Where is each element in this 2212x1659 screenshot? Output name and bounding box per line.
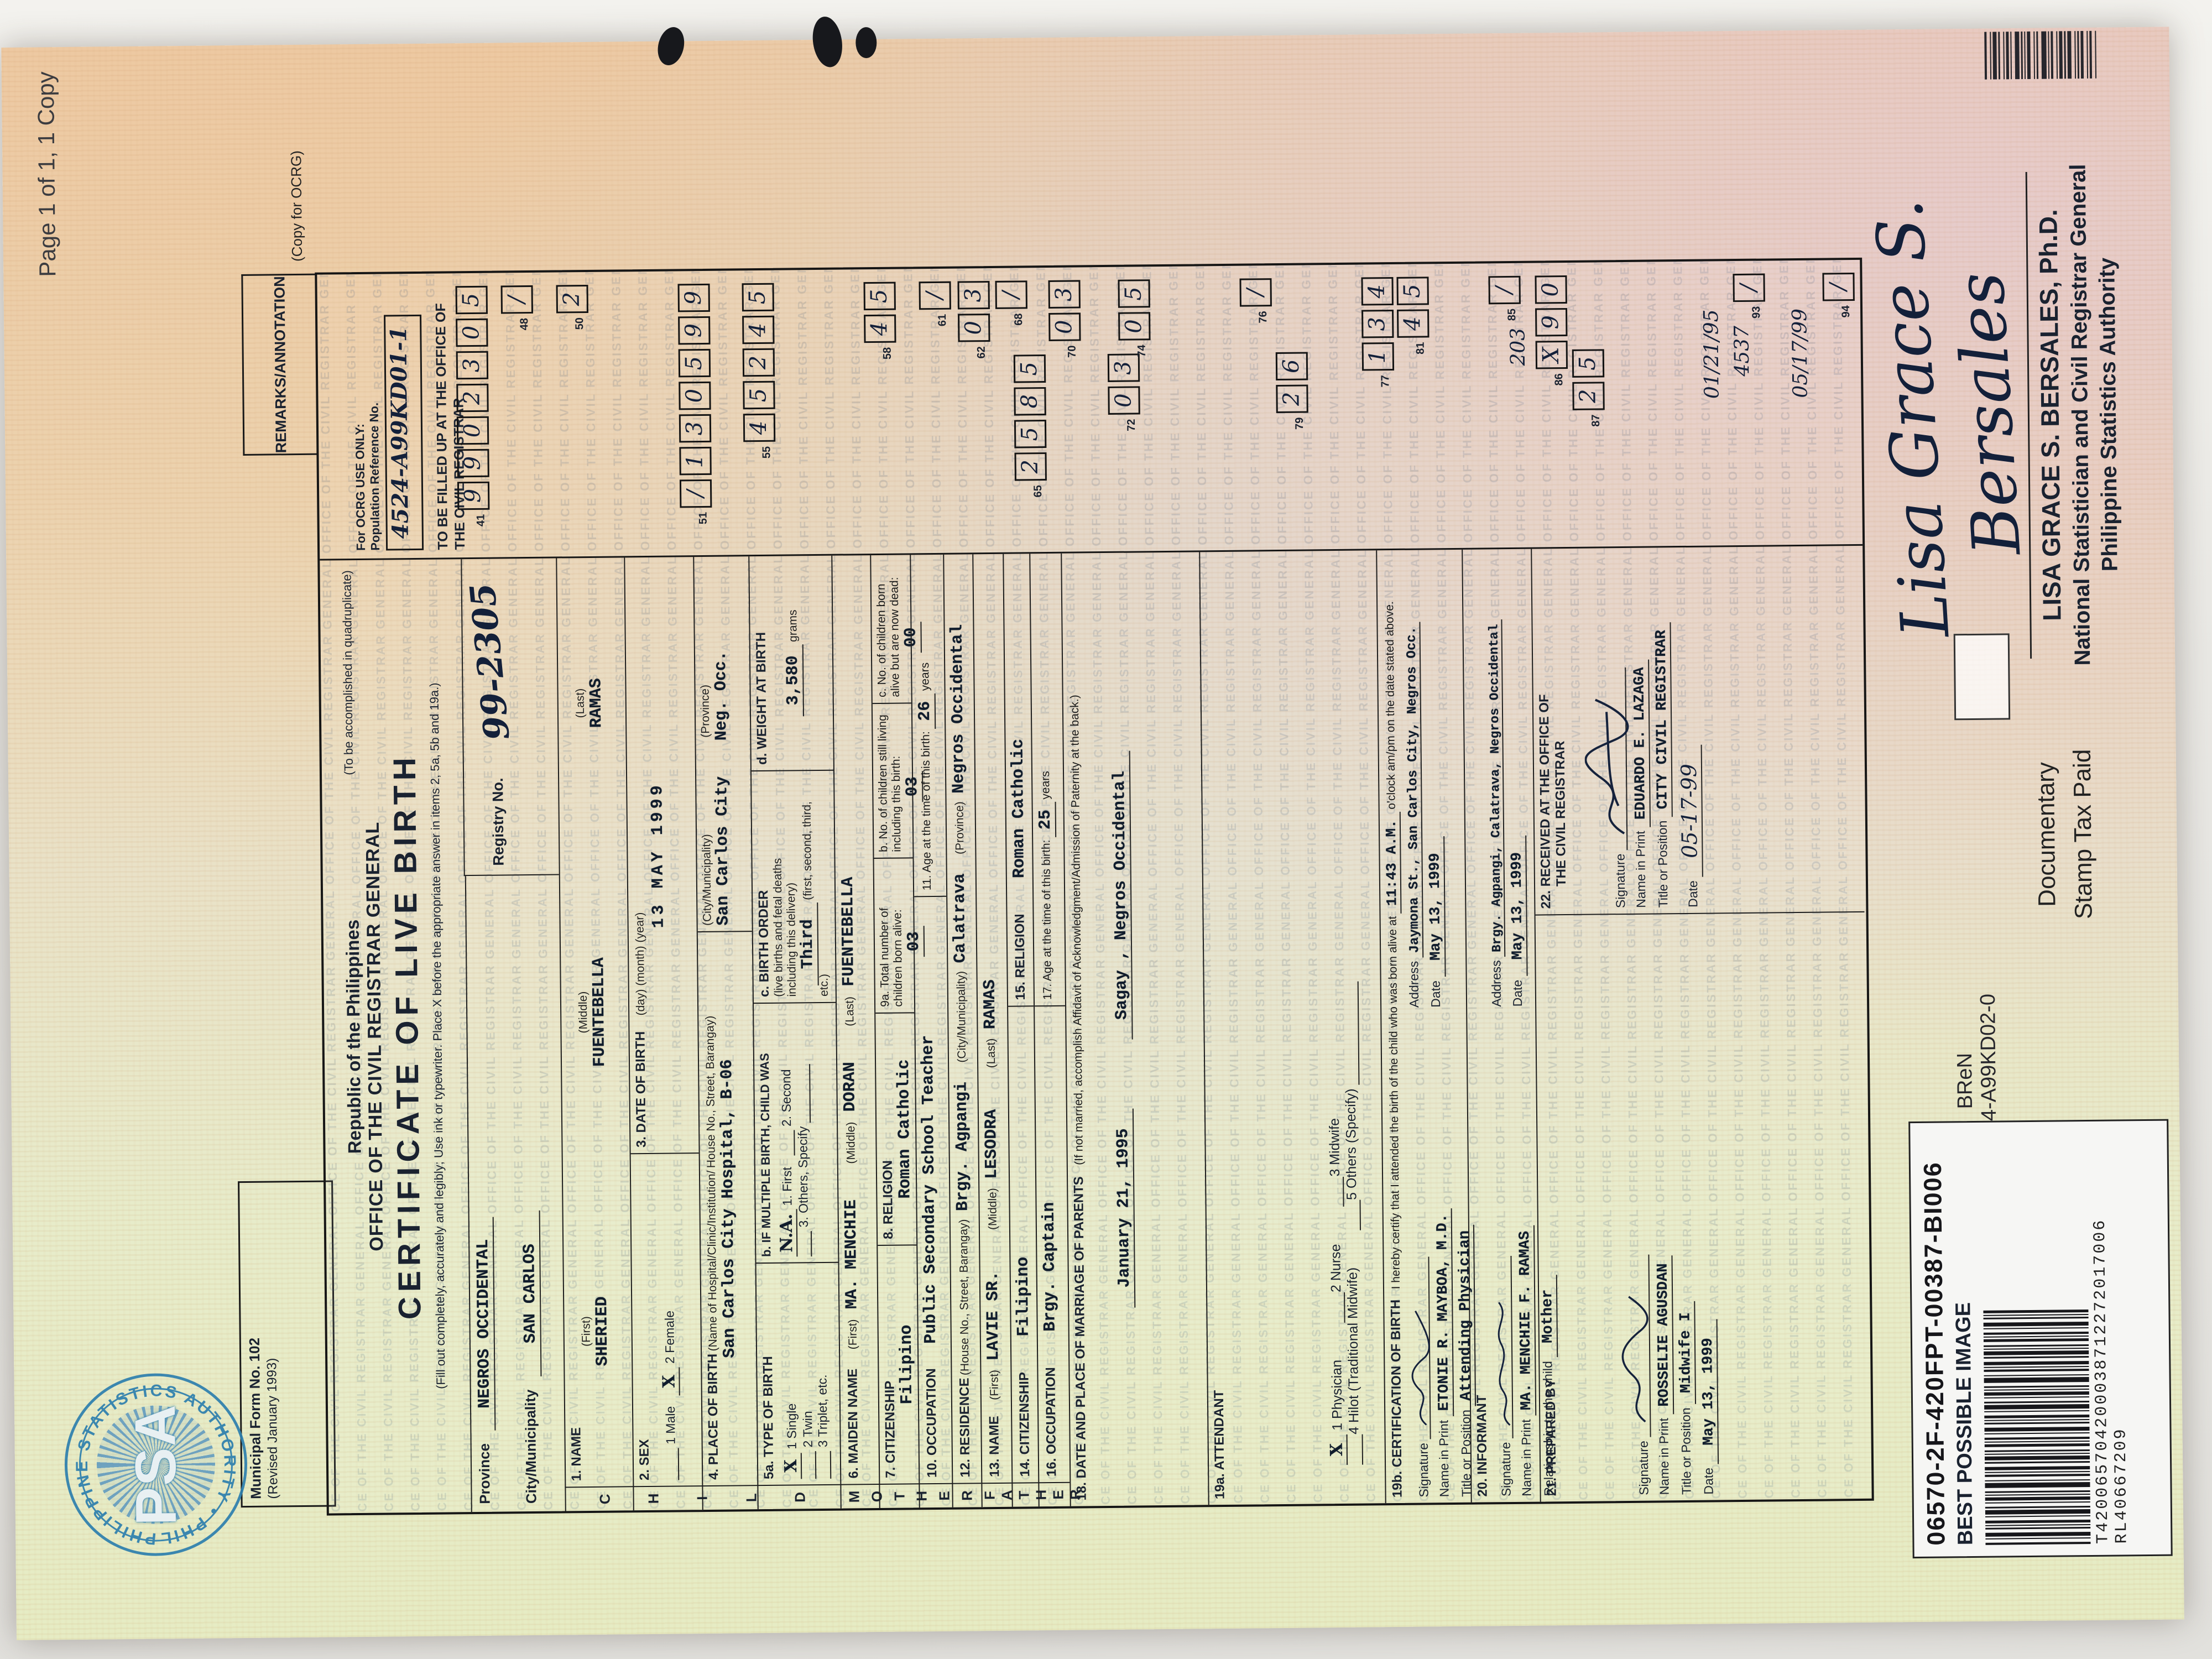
age11-years: years bbox=[919, 662, 931, 691]
pob-prov-sublabel: (Province) bbox=[698, 685, 712, 738]
ocrg-box-group-81: 8145 bbox=[1396, 276, 1429, 354]
ocrg-note: 05/17/99 bbox=[1788, 309, 1812, 398]
pob-city-value: San Carlos City bbox=[713, 776, 733, 925]
name13-label: 13. NAME bbox=[987, 1416, 1002, 1477]
weight-cell: d. WEIGHT AT BIRTH 3,580 grams bbox=[749, 556, 833, 771]
mb-option-others: 3. Others, Specify bbox=[795, 1126, 811, 1228]
age17-label: 17. Age at the time of this birth: bbox=[1040, 839, 1054, 1000]
child-last-name: RAMAS bbox=[587, 678, 606, 728]
cert-addr-label: Address bbox=[1406, 961, 1421, 1008]
copy-for-ocrg: (Copy for OCRG) bbox=[288, 150, 306, 262]
mother-first-name: MA. MENCHIE bbox=[842, 1199, 862, 1309]
sex-cell: 2. SEX 1 Male X 2 Female bbox=[631, 1154, 702, 1486]
mother-age-cell: 11. Age at the time of this birth: 26 ye… bbox=[911, 555, 946, 898]
last-sublabel: (Last) bbox=[573, 679, 587, 728]
pob-city-prov-cell: (City/Municipality) (Province) San Carlo… bbox=[694, 556, 752, 932]
occ16-label: 16. OCCUPATION bbox=[1043, 1367, 1059, 1477]
mother-middle-name: DORAN bbox=[841, 1062, 860, 1112]
mother-residence-city: Calatrava bbox=[951, 873, 971, 963]
ocrg-box-group-87: 8725 bbox=[1572, 349, 1605, 427]
sex-option-female: 2 Female bbox=[662, 1311, 677, 1364]
edge-barcode bbox=[1984, 30, 2151, 80]
ocrg-box-group-94: 94/ bbox=[1822, 273, 1855, 318]
mother-citizenship-cell: 7. CITIZENSHIP Filipino bbox=[878, 1245, 919, 1484]
father-religion-cell: 15. RELIGION Roman Catholic bbox=[1004, 554, 1034, 1006]
ocrg-box-group-93: 93/ bbox=[1733, 274, 1765, 319]
birth-order-cell: c. BIRTH ORDER (live births and fetal de… bbox=[752, 771, 836, 1004]
informant-address: Brgy. Agpangi, Calatrava, Negros Occiden… bbox=[1486, 619, 1505, 957]
prep-nip-label: Name in Print bbox=[1656, 1418, 1671, 1495]
m-last-sub: (Last) bbox=[843, 997, 857, 1026]
image-reference-box: 06570-2F-420FPT-00387-BI006 BEST POSSIBL… bbox=[1908, 1119, 2173, 1558]
mb-label: b. IF MULTIPLE BIRTH, CHILD WAS bbox=[758, 1053, 774, 1257]
ocrg-box-group-68: 68/ bbox=[995, 280, 1027, 326]
occ10-label: 10. OCCUPATION bbox=[924, 1368, 940, 1478]
row-child-name: 1. NAME (First) SHERIED (Middle) FUENTEB… bbox=[556, 557, 633, 1511]
municipal-form-revision: (Revised January 1993) bbox=[262, 1189, 281, 1499]
cert-name: ETONIE R. MAYBOA, M.D. bbox=[1434, 1208, 1454, 1417]
pob-cell: 4. PLACE OF BIRTH (Name of Hospital/Clin… bbox=[698, 932, 758, 1485]
child-first-name: SHERIED bbox=[593, 1296, 612, 1366]
name-label: 1. NAME bbox=[568, 1427, 584, 1481]
children-living-cell: b. No. of children still living includin… bbox=[873, 703, 913, 859]
population-ref-value: 4524-A99KD01-1 bbox=[384, 315, 424, 551]
cit7-label: 7. CITIZENSHIP bbox=[883, 1381, 899, 1478]
dob-label: 3. DATE OF BIRTH bbox=[633, 1031, 649, 1147]
mother-occupation-cell: 10. OCCUPATION Public Secondary School T… bbox=[914, 897, 952, 1484]
mother-residence-province: Negros Occidental bbox=[948, 624, 968, 794]
mother-occupation: Public Secondary School Teacher bbox=[919, 1035, 941, 1344]
registry-number-cell: Registry No. 99-2305 bbox=[461, 559, 559, 877]
prep-signature-label: Signature bbox=[1636, 1441, 1651, 1495]
ocrg-box-group-77: 77134 bbox=[1361, 277, 1394, 388]
row-type-of-birth: 5a. TYPE OF BIRTH X 1 Single 2 Twin 3 Tr… bbox=[748, 556, 841, 1509]
bo-note2: including this delivery) bbox=[784, 776, 799, 997]
ocrg-box-group-86: 86X90 bbox=[1535, 275, 1568, 386]
prepared-by-title: Midwife I bbox=[1677, 1301, 1696, 1404]
father-religion: Roman Catholic bbox=[1009, 739, 1029, 878]
ocrg-note: 4537 bbox=[1730, 326, 1754, 377]
tob-option-twin: 2 Twin bbox=[800, 1411, 815, 1447]
f-mid-sub: (Middle) bbox=[986, 1188, 999, 1230]
ocrg-box-group-85: 85/ bbox=[1488, 276, 1521, 321]
pob-label: 4. PLACE OF BIRTH bbox=[705, 1354, 721, 1480]
row-prepared-received: 21. PREPARED BY Signature Name in Print … bbox=[1531, 546, 1870, 1502]
cit14-label: 14. CITIZENSHIP bbox=[1016, 1372, 1032, 1477]
prep-date-label: Date bbox=[1701, 1468, 1715, 1495]
row-place-of-birth: 4. PLACE OF BIRTH (Name of Hospital/Clin… bbox=[693, 556, 758, 1510]
ocrg-box-group-58: 5845 bbox=[863, 282, 896, 360]
rec-signature-line bbox=[1606, 667, 1627, 850]
informant-cell: 20. INFORMANT Signature Name in Print MA… bbox=[1463, 549, 1540, 1503]
mar18-note: (If not married, accomplish Affidavit of… bbox=[1068, 695, 1086, 1165]
father-last-name: RAMAS bbox=[981, 979, 1000, 1029]
rec-date-label: Date bbox=[1686, 880, 1700, 907]
weight-value: 3,580 bbox=[784, 644, 804, 716]
form-main-area: (To be accomplished in quadruplicate) Re… bbox=[320, 546, 1871, 1514]
reference-barcode bbox=[1981, 1133, 2090, 1545]
marriage-place: Sagay , Negros Occidental bbox=[1110, 751, 1133, 1040]
mother-citizenship: Filipino bbox=[896, 1251, 917, 1478]
fill-instruction: (Fill out completely, accurately and leg… bbox=[425, 560, 450, 1512]
prepared-by-date: May 13, 1999 bbox=[1700, 1319, 1719, 1464]
attendant-others: 5 Others (Specify) bbox=[1343, 1088, 1360, 1200]
dob-value: 13 MAY 1999 bbox=[646, 563, 670, 1147]
rec-signature-label: Signature bbox=[1613, 854, 1627, 909]
age11-label: 11. Age at the time of this birth: bbox=[919, 731, 933, 890]
ocrg-box-group-65: 652585 bbox=[1014, 354, 1047, 498]
ocrg-box-group-51: 51/130599 bbox=[678, 284, 712, 525]
cert-nip-label: Name in Print bbox=[1436, 1420, 1451, 1498]
best-possible-image-label: BEST POSSIBLE IMAGE bbox=[1950, 1134, 1978, 1545]
registrar-general-title: National Statistician and Civil Registra… bbox=[2065, 72, 2096, 758]
barcode-number-2: RL40667209 bbox=[2109, 1132, 2131, 1543]
inf-nip-label: Name in Print bbox=[1519, 1419, 1533, 1496]
cert-signature-label: Signature bbox=[1416, 1443, 1431, 1498]
bo-label: c. BIRTH ORDER bbox=[756, 890, 772, 997]
father-age: 25 bbox=[1036, 802, 1057, 837]
cert-text1: I hereby certify that I attended the bir… bbox=[1386, 916, 1402, 1290]
prep-title-label: Title or Position bbox=[1678, 1407, 1694, 1495]
weight-label: d. WEIGHT AT BIRTH bbox=[754, 632, 770, 765]
ocrg-use-only-box: For OCRG USE ONLY: Population Reference … bbox=[351, 281, 424, 551]
dob-sublabel: (day) (month) (year) bbox=[633, 912, 647, 1016]
bo-value: Third bbox=[798, 902, 818, 985]
form-title: CERTIFICATE OF LIVE BIRTH bbox=[384, 560, 430, 1513]
marriage-date: January 21, 1995 bbox=[1114, 1108, 1135, 1307]
ocrg-box-group-41: 419902305 bbox=[456, 286, 490, 527]
psa-seal-stamp: PSA PHILIPPINE STATISTICS AUTHORITY • PH… bbox=[64, 1373, 248, 1557]
city-label: City/Municipality bbox=[522, 1389, 540, 1504]
mother-religion-cell: 8. RELIGION Roman Catholic bbox=[875, 1013, 916, 1246]
att19-label: 19a. ATTENDANT bbox=[1212, 1390, 1228, 1500]
cert-date: May 13, 1999 bbox=[1427, 836, 1446, 977]
ocrg-box-group-50: 502 bbox=[556, 285, 589, 330]
father-occupation-cell: 16. OCCUPATION Brgy. Captain bbox=[1035, 1006, 1070, 1482]
row-informant: 20. INFORMANT Signature Name in Print MA… bbox=[1462, 549, 1540, 1503]
f-first-sub: (First) bbox=[988, 1370, 1001, 1400]
registrar-general-signature-block: Lisa Grace S. Bersales LISA GRACE S. BER… bbox=[1871, 71, 2125, 759]
stamp-ring-text: PHILIPPINE STATISTICS AUTHORITY • PHILIP… bbox=[64, 1373, 248, 1557]
tob-option-triplet: 3 Triplet, etc. bbox=[815, 1374, 830, 1447]
rec22-label2: THE CIVIL REGISTRAR bbox=[1551, 554, 1569, 886]
inf-signature-line bbox=[1491, 1256, 1513, 1438]
father-citizenship-cell: 14. CITIZENSHIP Filipino bbox=[1008, 1006, 1038, 1482]
documentary-stamp-label: Documentary Stamp Tax Paid bbox=[2028, 749, 2103, 920]
docstamp-line2: Stamp Tax Paid bbox=[2064, 749, 2103, 919]
pob-prov-value: Neg. Occ. bbox=[712, 651, 732, 740]
form-header: (To be accomplished in quadruplicate) Re… bbox=[320, 560, 450, 1514]
registry-label: Registry No. bbox=[489, 778, 507, 865]
rec-nip-label: Name in Print bbox=[1633, 831, 1648, 908]
mb-value: N.A. bbox=[777, 1209, 798, 1257]
father-middle-name: LESODRA bbox=[982, 1109, 1001, 1179]
ink-blob bbox=[855, 27, 877, 58]
ocrg-box-group-62: 6203 bbox=[957, 281, 990, 359]
ocrg-box-group-70: 7003 bbox=[1048, 280, 1081, 358]
ocrg-box-group-48: 48/ bbox=[501, 285, 534, 331]
inf-date-label: Date bbox=[1510, 980, 1525, 1007]
f-last-sub: (Last) bbox=[985, 1039, 998, 1068]
inf-signature-label: Signature bbox=[1499, 1442, 1514, 1497]
res12-prov-sub: (Province) bbox=[953, 801, 967, 854]
certificate-form: OFFICE OF THE CIVIL REGISTRAR GENERAL OF… bbox=[315, 258, 1874, 1516]
inf-addr-label: Address bbox=[1489, 960, 1504, 1007]
sex-mark: X bbox=[659, 1367, 680, 1396]
cert-signature-line bbox=[1409, 1257, 1431, 1439]
signature-scribble bbox=[1408, 1307, 1434, 1428]
pob-sublabel1: (Name of Hospital/Clinic/Institution/ bbox=[705, 1171, 719, 1352]
signature-scribble bbox=[1493, 1300, 1516, 1427]
father-citizenship: Filipino bbox=[1014, 1256, 1033, 1336]
res12-sublabel: (House No., Street, Barangay) bbox=[957, 1219, 972, 1375]
quadruplicate-note: (To be accomplished in quadruplicate) bbox=[340, 570, 356, 775]
attendant-cell: 19a. ATTENDANT X 1 Physician 2 Nurse 3 M… bbox=[1200, 550, 1385, 1505]
cert-label: 19b. CERTIFICATION OF BIRTH bbox=[1388, 1300, 1405, 1498]
ocrg-box-group-79: 7926 bbox=[1276, 352, 1308, 430]
children-born-alive-cell: 9a. Total number of children born alive:… bbox=[874, 858, 915, 1014]
age17-years: years bbox=[1039, 771, 1052, 800]
father-first-name: LAVIE SR. bbox=[984, 1271, 1004, 1360]
city-row: City/Municipality SAN CARLOS bbox=[513, 875, 565, 1512]
row-certification: 19b. CERTIFICATION OF BIRTH I hereby cer… bbox=[1376, 550, 1471, 1503]
bersales-signature-script: Lisa Grace S. Bersales bbox=[1853, 69, 2048, 763]
child-middle-name: FUENTEBELLA bbox=[589, 957, 609, 1067]
certification-cell: 19b. CERTIFICATION OF BIRTH I hereby cer… bbox=[1377, 550, 1471, 1503]
remarks-annotation-box: REMARKS/ANNOTATION bbox=[241, 274, 318, 456]
mar18-label: 18. DATE AND PLACE OF MARRIAGE OF PARENT… bbox=[1071, 1176, 1089, 1500]
province-label: Province bbox=[476, 1443, 493, 1504]
cert-text2: o'clock am/pm on the date stated above. bbox=[1383, 601, 1398, 810]
city-value: SAN CARLOS bbox=[520, 1211, 542, 1376]
ocrg-box-group-72: 7203 bbox=[1108, 353, 1140, 431]
rel8-label: 8. RELIGION bbox=[880, 1160, 896, 1239]
children-dead-cell: c. No. of children born alive but are no… bbox=[871, 555, 911, 704]
informant-date: May 13, 1999 bbox=[1509, 836, 1527, 977]
attendant-nurse: 2 Nurse bbox=[1328, 1244, 1344, 1292]
municipal-form-number: Municipal Form No. 102 bbox=[244, 1190, 265, 1499]
ocrg-handwritten-notes: 20301/21/95453705/17/99 bbox=[317, 273, 320, 559]
sex-option-male: 1 Male bbox=[663, 1406, 678, 1444]
row-attendant: 19a. ATTENDANT X 1 Physician 2 Nurse 3 M… bbox=[1199, 550, 1385, 1505]
received-by-title: CITY CIVIL REGISTRAR bbox=[1653, 622, 1672, 817]
sex-label: 2. SEX bbox=[637, 1439, 653, 1480]
marriage-cell: 18. DATE AND PLACE OF MARRIAGE OF PARENT… bbox=[1062, 552, 1208, 1506]
mb-option-first: 1. First bbox=[780, 1167, 795, 1206]
pob-city-sublabel: (City/Municipality) bbox=[700, 834, 714, 926]
page-count-label: Page 1 of 1, 1 Copy bbox=[33, 71, 61, 277]
received-date: 05-17-99 bbox=[1677, 745, 1703, 877]
type-of-birth-cell: 5a. TYPE OF BIRTH X 1 Single 2 Twin 3 Tr… bbox=[757, 1263, 841, 1485]
photo-of-birth-certificate: Page 1 of 1, 1 Copy Municipal Form No. 1… bbox=[0, 0, 2212, 1659]
weight-unit: grams bbox=[786, 609, 800, 642]
m-mid-sub: (Middle) bbox=[844, 1122, 858, 1164]
tob-mark: X bbox=[781, 1453, 802, 1479]
maiden-label: 6. MAIDEN NAME bbox=[845, 1369, 861, 1479]
ocrg-note: 01/21/95 bbox=[1700, 309, 1724, 399]
attendant-hilot: 4 Hilot (Traditional Midwife) bbox=[1345, 1267, 1362, 1434]
prepared-by-cell: 21. PREPARED BY Signature Name in Print … bbox=[1536, 912, 1870, 1502]
mb-option-second: 2. Second bbox=[779, 1069, 794, 1126]
c9c-label: c. No. of children born alive but are no… bbox=[874, 561, 902, 697]
municipal-form-number-box: Municipal Form No. 102 (Revised January … bbox=[238, 1180, 336, 1507]
ocrg-box-group-74: 7405 bbox=[1118, 279, 1150, 357]
ocrg-box-group-76: 76/ bbox=[1239, 278, 1272, 324]
prepared-by-name: ROSSELIE AGUSDAN bbox=[1655, 1255, 1674, 1415]
registry-value-handwritten: 99-2305 bbox=[462, 582, 517, 742]
image-reference-number: 06570-2F-420FPT-00387-BI006 bbox=[1918, 1134, 1950, 1545]
father-occupation: Brgy. Captain bbox=[1040, 1202, 1060, 1332]
first-sublabel: (First) bbox=[580, 1296, 593, 1366]
prep-signature-line bbox=[1629, 1255, 1651, 1437]
c9a-label: 9a. Total number of children born alive: bbox=[878, 864, 905, 1007]
tob-label: 5a. TYPE OF BIRTH bbox=[760, 1356, 776, 1479]
row-sex-dob: 2. SEX 1 Male X 2 Female 3. DATE OF BIRT… bbox=[624, 557, 702, 1510]
res12-label: 12. RESIDENCE bbox=[957, 1378, 973, 1477]
rec-title-label: Title or Position bbox=[1655, 821, 1671, 908]
informant-name: MA. MENCHIE F. RAMAS bbox=[1517, 1225, 1536, 1416]
pob-sublabel2: House No., Street, Barangay) bbox=[703, 1016, 718, 1168]
signature-scribble bbox=[1584, 695, 1635, 839]
c9b-label: b. No. of children still living includin… bbox=[876, 709, 904, 852]
attendant-midwife: 3 Midwife bbox=[1327, 1118, 1343, 1177]
province-value: NEGROS OCCIDENTAL bbox=[474, 1217, 496, 1431]
mother-residence-brgy: Brgy. Agpangi bbox=[952, 1082, 972, 1211]
prep21-label: 21. PREPARED BY bbox=[1543, 1379, 1559, 1496]
cert-address: Jaymona St., San Carlos City, Negros Occ… bbox=[1404, 622, 1423, 958]
signature-scribble bbox=[1620, 1293, 1654, 1427]
ocrg-code-boxes: 41990230548/50251/1305995545245584561/62… bbox=[317, 273, 320, 559]
father-age-cell: 17. Age at the time of this birth: 25 ye… bbox=[1030, 554, 1065, 1006]
res12-city-sub: (City/Municipality) bbox=[954, 971, 968, 1063]
ocrg-box-group-55: 5545245 bbox=[742, 283, 776, 459]
mother-religion: Roman Catholic bbox=[894, 1019, 915, 1239]
ocrg-note: 203 bbox=[1506, 328, 1530, 366]
mother-last-name: FUENTEBELLA bbox=[839, 877, 859, 986]
ocrg-box-group-61: 61/ bbox=[919, 281, 951, 327]
svg-text:PHILIPPINE STATISTICS AUTHORIT: PHILIPPINE STATISTICS AUTHORITY • PHILIP… bbox=[64, 1381, 240, 1557]
docstamp-line1: Documentary bbox=[2028, 749, 2066, 920]
tob-option-single: 1 Single bbox=[784, 1404, 799, 1449]
multiple-birth-cell: b. IF MULTIPLE BIRTH, CHILD WAS N.A. 1. … bbox=[754, 1003, 838, 1264]
mother-age: 26 bbox=[916, 693, 936, 729]
attendant-physician: 1 Physician bbox=[1329, 1360, 1345, 1431]
m-first-sub: (First) bbox=[846, 1319, 859, 1349]
row-marriage: 18. DATE AND PLACE OF MARRIAGE OF PARENT… bbox=[1061, 552, 1208, 1506]
secpa-page: Page 1 of 1, 1 Copy Municipal Form No. 1… bbox=[1, 27, 2184, 1640]
ocrg-sidebar: For OCRG USE ONLY: Population Reference … bbox=[317, 258, 1863, 561]
cert-date-label: Date bbox=[1428, 980, 1443, 1008]
dob-cell: 3. DATE OF BIRTH (day) (month) (year) 13… bbox=[625, 557, 698, 1154]
child-name-cell: 1. NAME (First) SHERIED (Middle) FUENTEB… bbox=[557, 557, 633, 1486]
population-ref-label: Population Reference No. bbox=[366, 282, 383, 551]
cert-time: 11:43 A.M. bbox=[1383, 812, 1402, 914]
rel15-label: 15. RELIGION bbox=[1012, 914, 1027, 1000]
province-row: Province NEGROS OCCIDENTAL bbox=[465, 875, 519, 1512]
attendant-mark: X bbox=[1327, 1434, 1348, 1465]
middle-sublabel: (Middle) bbox=[576, 957, 591, 1067]
received-at-cell: 22. RECEIVED AT THE OFFICE OF THE CIVIL … bbox=[1532, 546, 1864, 916]
